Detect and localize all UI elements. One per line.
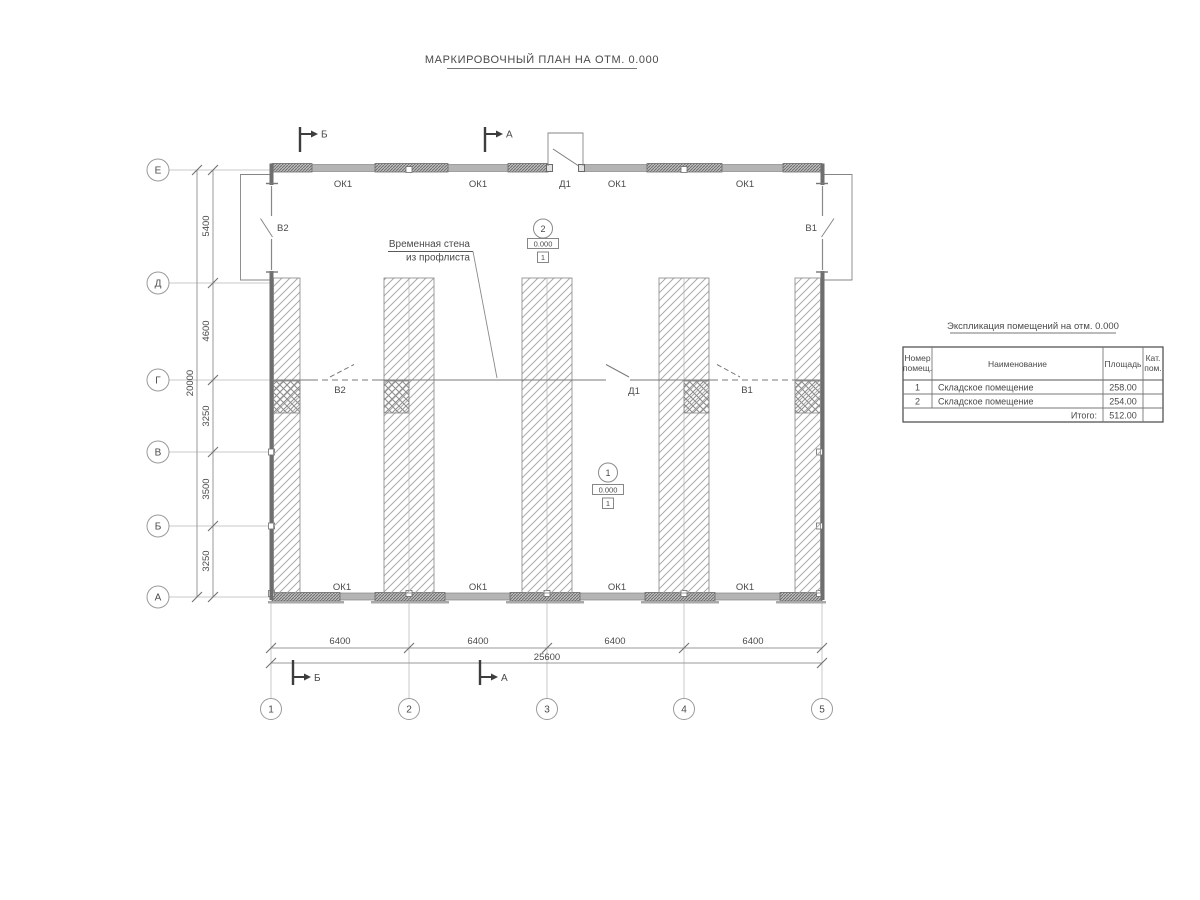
col-header-number: Номер [904, 353, 930, 363]
outer-sill [776, 601, 826, 604]
axis-label: Д [155, 279, 162, 290]
total-value: 512.00 [1109, 411, 1137, 421]
dim-label: 6400 [604, 636, 625, 647]
window-label: ОК1 [608, 582, 626, 593]
drawing-sheet: МАРКИРОВОЧНЫЙ ПЛАН НА ОТМ. 0.000 Е Д Г В [0, 0, 1200, 900]
axis-label: 1 [268, 705, 274, 716]
room-number: 2 [540, 224, 545, 234]
dim-total-label: 25600 [534, 652, 560, 663]
section-label: Б [321, 130, 328, 141]
window-sill [645, 593, 715, 602]
section-marker-top-b: Б [300, 127, 328, 152]
dim-total-label: 20000 [185, 370, 196, 396]
pilaster [795, 278, 821, 593]
axis-label: Г [155, 376, 161, 387]
dim-label: 6400 [467, 636, 488, 647]
axis-circle-col-4: 4 [674, 699, 695, 720]
elevation-value: 0.000 [599, 485, 618, 494]
section-label: А [506, 130, 513, 141]
floor-type: 1 [606, 499, 610, 508]
pilaster [274, 278, 301, 593]
window-label: ОК1 [333, 582, 351, 593]
window-label: ОК1 [469, 582, 487, 593]
door-leaf [717, 365, 740, 378]
window-label: ОК1 [469, 179, 487, 190]
gate-leaf [261, 219, 273, 238]
explication-table: Экспликация помещений на отм. 0.000 Номе… [903, 321, 1163, 422]
left-dimensions: 5400 4600 3250 3500 3250 20000 [185, 165, 218, 602]
axis-label: А [155, 593, 162, 604]
section-marker-bottom-b: Б [293, 660, 321, 685]
door-leaf [330, 365, 354, 378]
axis-circle-row-D: Д [147, 272, 169, 294]
table-total-row: Итого: 512.00 [1071, 411, 1137, 421]
outer-sill [506, 601, 584, 604]
window-label: ОК1 [736, 582, 754, 593]
dim-label: 4600 [201, 320, 212, 341]
floor-plan-drawing: МАРКИРОВОЧНЫЙ ПЛАН НА ОТМ. 0.000 Е Д Г В [0, 0, 1200, 900]
cell-name: Складское помещение [938, 383, 1033, 393]
right-gate-enclosure [822, 175, 852, 281]
section-label: А [501, 673, 508, 684]
window-sill [780, 593, 822, 602]
table-row: 1 Складское помещение 258.00 [915, 383, 1137, 393]
cell-area: 258.00 [1109, 383, 1137, 393]
cell-area: 254.00 [1109, 397, 1137, 407]
table-title: Экспликация помещений на отм. 0.000 [947, 321, 1119, 332]
drawing-title: МАРКИРОВОЧНЫЙ ПЛАН НА ОТМ. 0.000 [425, 53, 659, 69]
elevation-value: 0.000 [534, 239, 553, 248]
axis-label: Б [155, 522, 162, 533]
axis-label: 3 [544, 705, 550, 716]
leader-line [473, 252, 497, 379]
window-sill [272, 593, 340, 602]
axis-circle-row-A: А [147, 586, 169, 608]
pilaster-crosshatch [795, 381, 821, 413]
dim-label: 6400 [329, 636, 350, 647]
section-arrow [304, 674, 311, 681]
door-label: Д1 [559, 179, 571, 190]
cell-name: Складское помещение [938, 397, 1033, 407]
window-sill [272, 164, 312, 173]
table-row: 2 Складское помещение 254.00 [915, 397, 1137, 407]
gate-label: В1 [805, 223, 817, 234]
left-gate-enclosure [241, 175, 273, 281]
axis-label: Е [155, 166, 162, 177]
section-arrow [496, 131, 503, 138]
axis-circle-col-5: 5 [812, 699, 833, 720]
room-marker-2: 2 0.000 1 [528, 219, 559, 263]
pilaster [659, 278, 709, 593]
room-marker-1: 1 0.000 1 [593, 463, 624, 509]
outer-sill [641, 601, 719, 604]
floor-type: 1 [541, 253, 545, 262]
axis-circle-col-2: 2 [399, 699, 420, 720]
door-leaf [606, 365, 629, 378]
axis-circle-col-1: 1 [261, 699, 282, 720]
axis-label: В [155, 448, 162, 459]
dim-label: 5400 [201, 215, 212, 236]
room-number: 1 [605, 468, 610, 478]
dim-label: 3250 [201, 405, 212, 426]
total-label: Итого: [1071, 411, 1097, 421]
section-marker-bottom-a: А [480, 660, 508, 685]
window-sill [783, 164, 822, 173]
outer-sill [268, 601, 344, 604]
door-label: Д1 [628, 386, 640, 397]
col-header-cat: пом. [1144, 363, 1162, 373]
section-arrow [491, 674, 498, 681]
door-jamb [547, 165, 553, 172]
annotation-line1: Временная стена [389, 239, 471, 250]
window-label: ОК1 [334, 179, 352, 190]
cell-number: 1 [915, 383, 920, 393]
axis-circle-row-E: Е [147, 159, 169, 181]
axis-circle-col-3: 3 [537, 699, 558, 720]
cell-number: 2 [915, 397, 920, 407]
axis-circle-row-V: В [147, 441, 169, 463]
gate-label: В2 [277, 223, 289, 234]
axis-circle-row-B: Б [147, 515, 169, 537]
door-label: В1 [741, 385, 753, 396]
col-header-cat: Кат. [1146, 353, 1161, 363]
axis-label: 4 [681, 705, 687, 716]
pilaster-columns [274, 278, 821, 593]
section-arrow [311, 131, 318, 138]
dim-label: 3500 [201, 478, 212, 499]
axis-circle-row-G: Г [147, 369, 169, 391]
top-wall: ОК1 ОК1 Д1 ОК1 ОК1 [272, 133, 822, 190]
pilaster [522, 278, 572, 593]
door-jamb [579, 165, 585, 172]
page-title: МАРКИРОВОЧНЫЙ ПЛАН НА ОТМ. 0.000 [425, 53, 659, 66]
pilaster-crosshatch [684, 381, 709, 413]
window-sill [508, 164, 548, 173]
table-header: Номер помещ. Наименование Площадь Кат. п… [903, 353, 1162, 373]
window-label: ОК1 [608, 179, 626, 190]
col-header-number: помещ. [903, 363, 932, 373]
door-label: В2 [334, 385, 346, 396]
annotation-line2: из профлиста [406, 252, 470, 264]
dim-label: 3250 [201, 550, 212, 571]
section-marker-top-a: А [485, 127, 513, 152]
window-label: ОК1 [736, 179, 754, 190]
outer-sill [371, 601, 449, 604]
section-label: Б [314, 673, 321, 684]
col-header-name: Наименование [988, 359, 1047, 369]
pilaster-crosshatch [274, 381, 301, 413]
pilaster [384, 278, 434, 593]
wall-axis-square [406, 167, 412, 173]
dim-label: 6400 [742, 636, 763, 647]
wall-axis-square [681, 167, 687, 173]
axis-label: 2 [406, 705, 412, 716]
pilaster-crosshatch [384, 381, 409, 413]
axis-label: 5 [819, 705, 825, 716]
col-header-area: Площадь [1104, 359, 1142, 369]
gate-leaf [822, 219, 835, 238]
